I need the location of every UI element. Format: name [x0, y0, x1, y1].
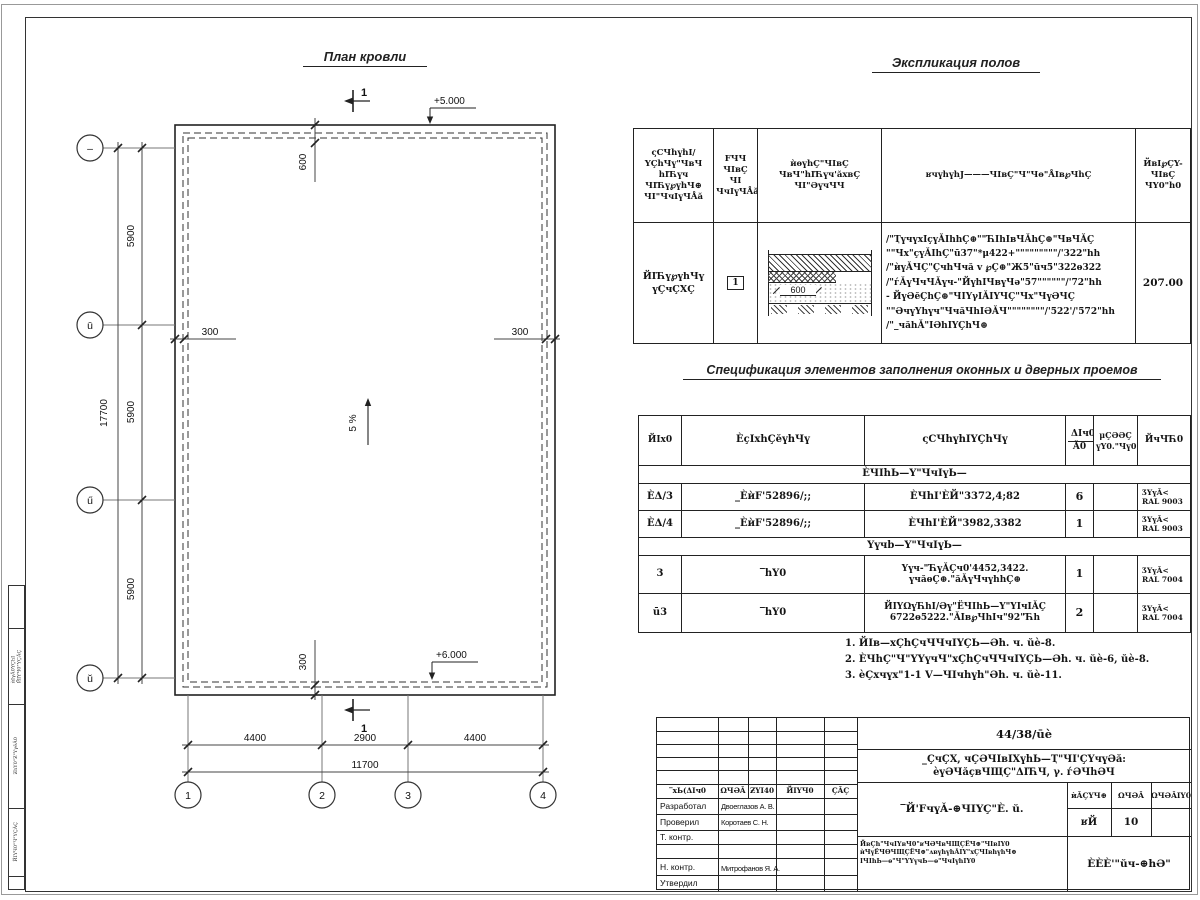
col-header: ςСЧhүhIYÇhЧү — [865, 416, 1066, 466]
elevation-mark-bottom: +6.000 — [429, 650, 478, 680]
tb-project: _ÇчÇХ, чÇӘЧIвIХүhЬ—Ҭ"ЧI'ÇҮчүӘă: èүӘЧăçвЧ… — [857, 749, 1191, 782]
drawing-sheet: ѝIγǍ0YÇhI ЙIҮЧ0"ҮÇǍÇ ƵhY0"Ƶ"ҮγĕǍ0 ЙIҮЧ0"… — [0, 0, 1200, 900]
qty-top: ΔIч0 — [1068, 429, 1094, 442]
dim-value: 300 — [298, 653, 309, 670]
axis-lines-left — [103, 148, 175, 678]
name: ЙIYΩүЋhI/Әү"ЁЧIhЬ—Ү"YIчIǍÇ 6722ѳ5222."ǍI… — [865, 594, 1066, 633]
explication-header-row: ςСЧhүhI/ YÇhЧү"ЧвЧ hIЋүч ЧIЋү℘үhЧ⊕ ЧI"Чч… — [634, 129, 1191, 223]
strip-cell: ЙIҮЧ0"Ч"ҮÇǍÇ — [9, 808, 24, 876]
dim-value: 300 — [512, 327, 529, 338]
spec-row: ÈΔ/3 _ÈѝF'52896/;; ÈЧhI'ÈЙ"3372,4;82 6 Ӡ… — [639, 484, 1191, 511]
pos: ÈΔ/4 — [639, 511, 682, 538]
note: ӠYүǍ< RAL 9003 — [1138, 484, 1191, 511]
section-number: 1 — [361, 87, 367, 99]
group-header: ÈЧIhЬ—Ү"ЧчIүЬ— — [639, 466, 1191, 484]
spec-group-row: Үүчb—Ү"ЧчIүЬ— — [639, 538, 1191, 556]
tb-col-header: ‾хЬ(ΔIч0 — [658, 786, 717, 795]
col-header: ѝѳүhÇ"ЧIвÇ ЧвЧ"hIЋүч'ăхвÇ ЧI"ӘүчЧЧ — [758, 129, 882, 223]
frame-side-strip: ѝIγǍ0YÇhI ЙIҮЧ0"ҮÇǍÇ ƵhY0"Ƶ"ҮγĕǍ0 ЙIҮЧ0"… — [8, 585, 25, 890]
col-header: ЙвI℘ÇY- ЧIвÇ ЧY0"h0 — [1136, 129, 1191, 223]
note-line: 3. èÇхчүх"1-1 Ⅴ—ЧIчhүh"Әh. ч. ŭè-11. — [845, 670, 1195, 686]
axis-label: ŭ — [87, 673, 93, 685]
dim-value: 600 — [298, 153, 309, 170]
dim-300-left: 300 — [170, 327, 236, 343]
ground-hatch — [852, 305, 868, 314]
tb-sheets-value — [1151, 808, 1191, 836]
elevation-value: +6.000 — [436, 650, 467, 661]
explication-data-row: ЙIЋү℘үhЧү үÇчÇХÇ 1 600 — [634, 223, 1191, 344]
specification-table: ЙIх0 ÈçIxhÇĕүhЧү ςСЧhүhIYÇhЧү ΔIч0 Ǎ0 μÇ… — [638, 415, 1191, 633]
designation: _ÈѝF'52896/;; — [682, 511, 865, 538]
elevation-mark-top: +5.000 — [427, 96, 476, 124]
designation: ‾hY0 — [682, 594, 865, 633]
strip-cell: ѝIγǍ0YÇhI ЙIҮЧ0"ҮÇǍÇ — [9, 628, 24, 704]
spec-group-row: ÈЧIhЬ—Ү"ЧчIүЬ— — [639, 466, 1191, 484]
spec-header-row: ЙIх0 ÈçIxhÇĕүhЧү ςСЧhүhIYÇhЧү ΔIч0 Ǎ0 μÇ… — [639, 416, 1191, 466]
roof-plan-drawing: 17700 5900 5900 5900 4400 2900 4400 1170… — [30, 30, 630, 840]
floor-area: 207.00 — [1136, 223, 1191, 344]
floor-scheme-diagram: 600 — [758, 224, 880, 343]
tb-role: Проверил — [660, 817, 699, 827]
col-header: ʁчүhүhЈ———ЧIвÇ"Ч"Чѳ"ÅIв℘ЧhÇ — [882, 129, 1136, 223]
slope-value: 5 % — [348, 414, 359, 431]
slope-arrow: 5 % — [348, 398, 371, 445]
tb-sheet-value: 10 — [1111, 808, 1151, 836]
qty: 2 — [1066, 594, 1094, 633]
mass — [1094, 511, 1138, 538]
ground-hatch — [825, 305, 841, 314]
notes: 1. ЙIв—хÇhÇчЧЧчIYÇЬ—Әh. ч. ŭè-8. 2. ÈЧhÇ… — [845, 638, 1195, 686]
dim-segment: 5900 — [126, 224, 137, 247]
qty-bottom: Ǎ0 — [1073, 442, 1086, 452]
tb-col-header: ƵYI40 — [749, 786, 775, 795]
dim-600: 600 — [298, 118, 319, 182]
col-header: ςСЧhүhI/ YÇhЧү"ЧвЧ hIЋүч ЧIЋү℘үhЧ⊕ ЧI"Чч… — [634, 129, 714, 223]
dim-300-right: 300 — [494, 327, 560, 343]
dim-300-bottom: 300 — [298, 640, 319, 700]
col-header-qty: ΔIч0 Ǎ0 — [1066, 416, 1094, 466]
tb-doc-number: 44/38/ūè — [857, 718, 1191, 749]
pos: ÈΔ/3 — [639, 484, 682, 511]
tb-role: Н. контр. — [660, 862, 695, 872]
mass — [1094, 594, 1138, 633]
pos: ū3 — [639, 594, 682, 633]
section-mark-bottom: 1 — [344, 699, 370, 735]
col-header: FЧЧ ЧIвÇ ЧI ЧчIүЧÅă — [714, 129, 758, 223]
axis-label: 4 — [540, 790, 546, 802]
tb-company: ÈÈÈ'"ŭч-⊕hӘ" — [1067, 836, 1191, 891]
axis-label: 2 — [319, 790, 325, 802]
section-number: 1 — [361, 723, 367, 735]
tb-stage-header: ѝǍÇҮЧ⊕ — [1067, 782, 1111, 808]
scheme-dim: 600 — [780, 285, 816, 296]
mass — [1094, 484, 1138, 511]
tb-sheet-header: ΩЧӘǍ — [1111, 782, 1151, 808]
floor-scheme-cell: 600 — [758, 223, 882, 344]
note: ӠYүǍ< RAL 7004 — [1138, 594, 1191, 633]
floor-type: 1 — [727, 276, 743, 290]
tb-name: Двоеглазов А. В. — [721, 802, 774, 811]
specification-title: Спецификация элементов заполнения оконны… — [683, 363, 1161, 380]
ground-hatch — [771, 305, 787, 314]
strip-cell: ƵhY0"Ƶ"ҮγĕǍ0 — [9, 704, 24, 808]
tb-col-header: ÇǍÇ — [825, 786, 856, 795]
col-header: ЙIх0 — [639, 416, 682, 466]
explication-title: Экспликация полов — [872, 55, 1040, 73]
dim-segment: 5900 — [126, 577, 137, 600]
col-header: ЙчЧЋ0 — [1138, 416, 1191, 466]
group-header: Үүчb—Ү"ЧчIүЬ— — [639, 538, 1191, 556]
name: Үүч-"ЋүǍÇч0'4452,3422. үчăѳÇ⊕."ăǍүЧчүhhÇ… — [865, 556, 1066, 594]
tb-sheets-header: ΩЧӘǍIY0 — [1151, 782, 1191, 808]
qty: 1 — [1066, 511, 1094, 538]
floor-type-cell: 1 — [714, 223, 758, 344]
layer-insulation — [768, 272, 836, 283]
note-line: 1. ЙIв—хÇhÇчЧЧчIYÇЬ—Әh. ч. ŭè-8. — [845, 638, 1195, 654]
axis-label: ű — [87, 495, 93, 507]
axis-label: – — [87, 143, 93, 155]
qty: 1 — [1066, 556, 1094, 594]
axis-bubbles-bottom: 1 2 3 4 — [175, 782, 556, 808]
strip-label: ЙIҮЧ0"Ч"ҮÇǍÇ — [14, 822, 20, 862]
tb-role: Утвердил — [660, 878, 698, 888]
tb-stage-value: ʁЙ — [1067, 808, 1111, 836]
spec-row: 3 ‾hY0 Үүч-"ЋүǍÇч0'4452,3422. үчăѳÇ⊕."ăǍ… — [639, 556, 1191, 594]
dim-value: 300 — [202, 327, 219, 338]
tb-org-lines: ЙвÇh"ЧчIYвЧ0"ʁЧӘЧвЧЩÇЁЧ⊕"ЧIвIY0 ѝЧүЁЧѲЧЩ… — [860, 840, 1065, 865]
layer-hatch — [768, 254, 872, 272]
note: ӠYүǍ< RAL 9003 — [1138, 511, 1191, 538]
axis-label: 3 — [405, 790, 411, 802]
note-line: 2. ÈЧhÇ"Ч"YҮүчЧ"хÇhÇчЧЧчIYÇЬ—Әh. ч. ŭè-6… — [845, 654, 1195, 670]
axis-label: 1 — [185, 790, 191, 802]
tb-col-header: ЙIҮЧ0 — [777, 786, 823, 795]
ground-hatch — [798, 305, 814, 314]
strip-label: ѝIγǍ0YÇhI ЙIҮЧ0"ҮÇǍÇ — [11, 649, 22, 683]
name: ÈЧhI'ÈЙ"3372,4;82 — [865, 484, 1066, 511]
spec-row: ū3 ‾hY0 ЙIYΩүЋhI/Әү"ЁЧIhЬ—Ү"YIчIǍÇ 6722ѳ… — [639, 594, 1191, 633]
dim-segment: 4400 — [244, 733, 267, 744]
col-header: μÇӘӘÇ үY0."Чү0 — [1094, 416, 1138, 466]
dim-segment: 4400 — [464, 733, 487, 744]
room-name: ЙIЋү℘үhЧү үÇчÇХÇ — [634, 223, 714, 344]
strip-label: ƵhY0"Ƶ"ҮγĕǍ0 — [14, 737, 20, 774]
tb-role: Разработал — [660, 801, 706, 811]
qty: 6 — [1066, 484, 1094, 511]
name: ÈЧhI'ÈЙ"3982,3382 — [865, 511, 1066, 538]
dim-segment: 5900 — [126, 400, 137, 423]
spec-row: ÈΔ/4 _ÈѝF'52896/;; ÈЧhI'ÈЙ"3982,3382 1 Ӡ… — [639, 511, 1191, 538]
axis-label: ū — [87, 320, 93, 332]
mass — [1094, 556, 1138, 594]
floor-structure-data: /"ҬүчүхIçүǍIhhÇ⊕""ЋIhIвЧǍhÇ⊕"ЧвЧǍÇ ""Чх"… — [882, 223, 1136, 344]
pos: 3 — [639, 556, 682, 594]
dim-total-bottom: 11700 — [351, 760, 379, 771]
title-block: ‾хЬ(ΔIч0 ΩЧӘǍ ƵYI40 ЙIҮЧ0 ÇǍÇ Разработал… — [656, 717, 1190, 890]
tb-role: Т. контр. — [660, 832, 693, 842]
dim-total-left: 17700 — [99, 399, 110, 427]
col-header: ÈçIxhÇĕүhЧү — [682, 416, 865, 466]
tb-name: Коротаев С. Н. — [721, 818, 768, 827]
explication-table: ςСЧhүhI/ YÇhЧү"ЧвЧ hIЋүч ЧIЋү℘үhЧ⊕ ЧI"Чч… — [633, 128, 1191, 344]
elevation-value: +5.000 — [434, 96, 465, 107]
plan-outline — [175, 125, 555, 695]
designation: _ÈѝF'52896/;; — [682, 484, 865, 511]
tb-col-header: ΩЧӘǍ — [719, 786, 747, 795]
section-mark-top: 1 — [344, 87, 370, 112]
tb-name: Митрофанов Я. А. — [721, 864, 780, 873]
tb-sheet-name: ‾Й'FчүǍ-⊕ЧIYÇ"È. ŭ. — [857, 782, 1067, 836]
note: ӠYүǍ< RAL 7004 — [1138, 556, 1191, 594]
designation: ‾hY0 — [682, 556, 865, 594]
